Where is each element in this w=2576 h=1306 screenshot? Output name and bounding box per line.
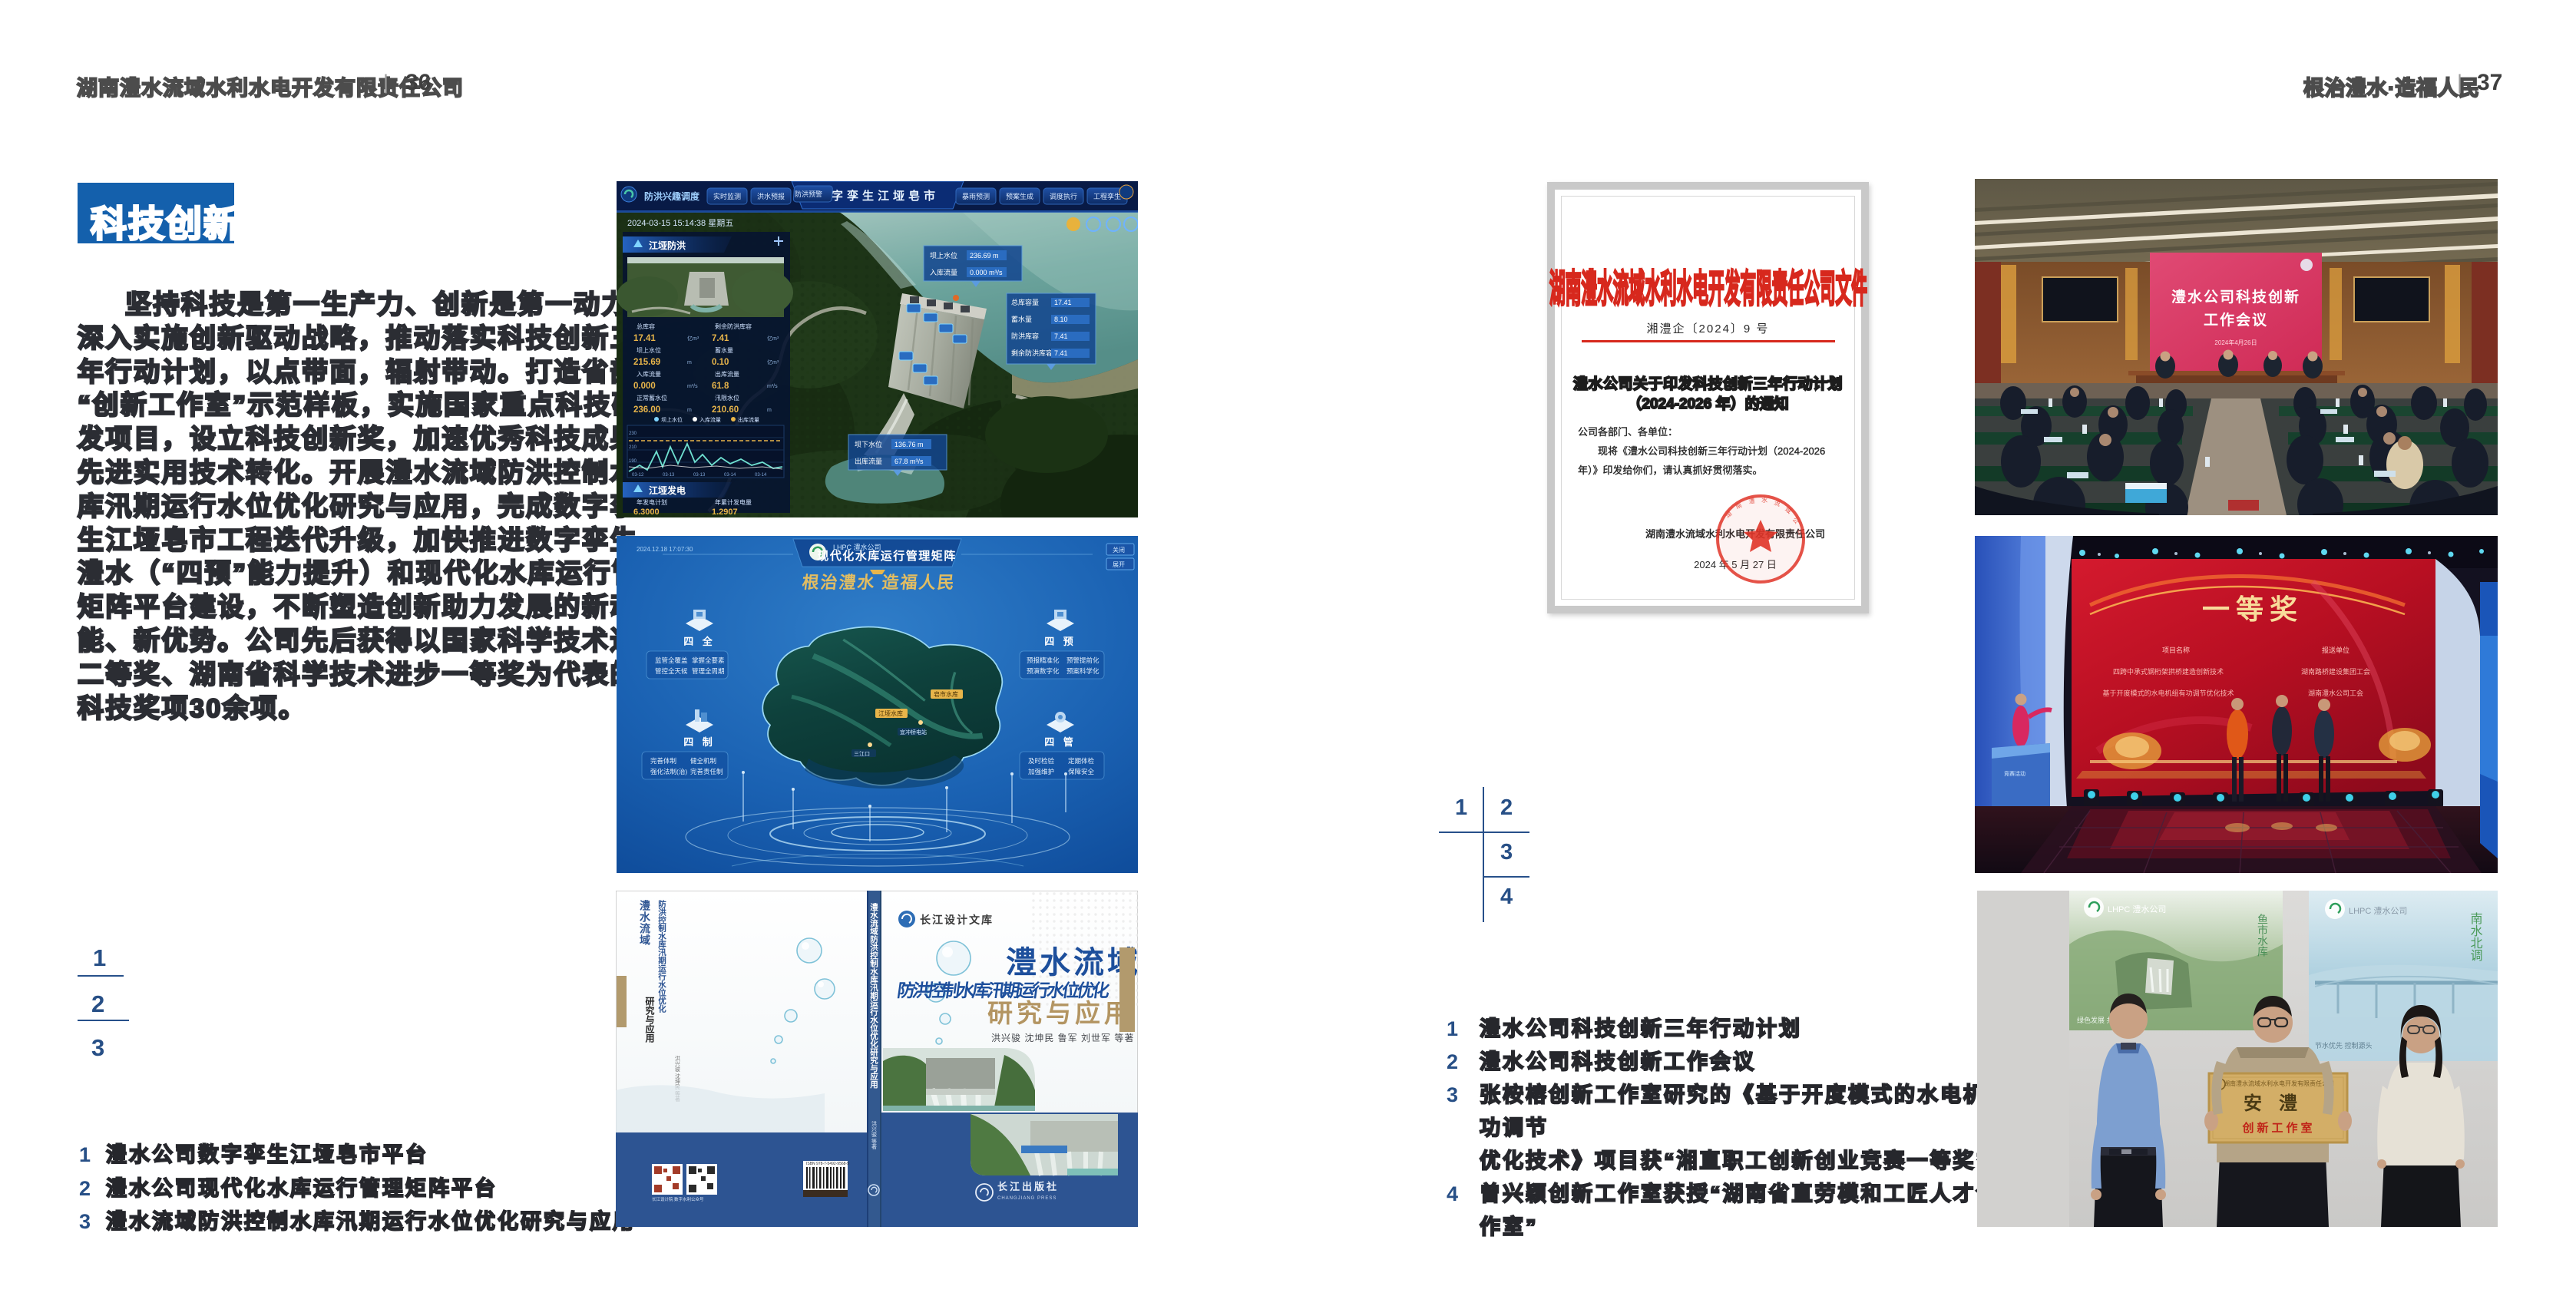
svg-text:215.69: 215.69 xyxy=(633,358,660,367)
svg-text:掌握全要素: 掌握全要素 xyxy=(692,656,725,664)
svg-text:7.41: 7.41 xyxy=(712,334,729,343)
svg-text:0.000 m³/s: 0.000 m³/s xyxy=(970,269,1003,276)
svg-text:67.8 m³/s: 67.8 m³/s xyxy=(894,458,924,465)
svg-text:136.76 m: 136.76 m xyxy=(894,441,924,448)
svg-text:7.41: 7.41 xyxy=(1054,349,1068,357)
svg-text:管控全天候: 管控全天候 xyxy=(655,667,688,675)
svg-text:节水优先 控制源头: 节水优先 控制源头 xyxy=(2315,1041,2373,1050)
svg-text:监管全覆盖: 监管全覆盖 xyxy=(655,656,688,664)
svg-text:澧水流域防洪控制水库汛期运行水位优化研究与应用: 澧水流域防洪控制水库汛期运行水位优化研究与应用 xyxy=(869,902,878,1089)
svg-text:年发电计划: 年发电计划 xyxy=(637,498,667,506)
svg-text:m³/s: m³/s xyxy=(687,384,698,389)
svg-text:蓄水量: 蓄水量 xyxy=(715,346,733,354)
svg-text:m: m xyxy=(687,408,692,413)
svg-text:入库流量: 入库流量 xyxy=(930,268,957,276)
svg-text:南水北调: 南水北调 xyxy=(2469,912,2483,962)
svg-text:03-13: 03-13 xyxy=(663,473,675,478)
svg-text:澧水流域: 澧水流域 xyxy=(1006,946,1138,980)
svg-text:关闭: 关闭 xyxy=(1113,546,1125,554)
svg-text:基于开度模式的水电机组有功调节优化技术: 基于开度模式的水电机组有功调节优化技术 xyxy=(2102,689,2234,697)
svg-text:根治澧水 造福人民: 根治澧水 造福人民 xyxy=(801,573,957,592)
svg-text:入库流量: 入库流量 xyxy=(699,416,721,423)
svg-text:四 管: 四 管 xyxy=(1044,736,1076,748)
svg-text:及时检验: 及时检验 xyxy=(1028,757,1055,765)
svg-text:长江设计文库: 长江设计文库 xyxy=(920,914,994,926)
svg-text:鱼市水库: 鱼市水库 xyxy=(2257,913,2269,957)
svg-text:236.00: 236.00 xyxy=(633,405,660,415)
svg-text:皂市水库: 皂市水库 xyxy=(934,690,958,698)
svg-text:定期体检: 定期体检 xyxy=(1068,757,1095,765)
svg-text:报送单位: 报送单位 xyxy=(2322,646,2349,654)
svg-text:m: m xyxy=(767,408,772,413)
svg-text:61.8: 61.8 xyxy=(712,382,729,391)
svg-text:水: 水 xyxy=(1761,496,1768,504)
svg-text:数字孪生江垭皂市: 数字孪生江垭皂市 xyxy=(816,189,939,203)
svg-text:03-14: 03-14 xyxy=(724,473,736,478)
svg-text:工程孪生: 工程孪生 xyxy=(1093,192,1121,200)
svg-text:8.10: 8.10 xyxy=(1054,316,1068,323)
svg-text:洪兴骏 等著: 洪兴骏 等著 xyxy=(871,1120,878,1150)
svg-text:加强维护: 加强维护 xyxy=(1028,768,1054,775)
svg-text:完善体制: 完善体制 xyxy=(650,757,676,765)
svg-text:汛限水位: 汛限水位 xyxy=(715,394,739,402)
svg-text:17.41: 17.41 xyxy=(1054,299,1072,306)
svg-text:2024-03-15 15:14:38 星期五: 2024-03-15 15:14:38 星期五 xyxy=(627,218,733,228)
svg-text:防洪兴趣调度: 防洪兴趣调度 xyxy=(644,190,700,202)
svg-text:湖南路桥建设集团工会: 湖南路桥建设集团工会 xyxy=(2301,667,2370,676)
svg-text:210.60: 210.60 xyxy=(712,405,739,415)
svg-text:研究与应用: 研究与应用 xyxy=(987,999,1133,1027)
svg-text:预案生成: 预案生成 xyxy=(1006,192,1033,200)
svg-text:宜冲桥电站: 宜冲桥电站 xyxy=(900,729,927,736)
svg-text:一等奖: 一等奖 xyxy=(2202,593,2303,625)
svg-text:四 全: 四 全 xyxy=(683,636,716,647)
svg-text:03-14: 03-14 xyxy=(755,473,767,478)
svg-text:四跨中承式钢桁架拱桥建造创新技术: 四跨中承式钢桁架拱桥建造创新技术 xyxy=(2113,667,2224,676)
svg-text:03-13: 03-13 xyxy=(693,473,706,478)
svg-text:洪兴骏 沈坤民 鲁军 刘世军 等著: 洪兴骏 沈坤民 鲁军 刘世军 等著 xyxy=(991,1032,1134,1043)
svg-text:工作会议: 工作会议 xyxy=(2204,311,2268,329)
svg-text:长江设计院 数字水利公众号: 长江设计院 数字水利公众号 xyxy=(652,1196,704,1202)
svg-text:实时监测: 实时监测 xyxy=(713,192,741,200)
svg-text:210: 210 xyxy=(629,445,637,450)
svg-text:LHPC 澧水公司: LHPC 澧水公司 xyxy=(2349,905,2407,916)
svg-text:7.41: 7.41 xyxy=(1054,332,1068,340)
svg-text:17.41: 17.41 xyxy=(633,334,656,343)
svg-text:236.69 m: 236.69 m xyxy=(970,252,999,260)
svg-text:江垭水库: 江垭水库 xyxy=(878,709,903,717)
svg-text:防洪控制水库汛期运行水位优化: 防洪控制水库汛期运行水位优化 xyxy=(896,980,1111,1000)
svg-text:暴雨预测: 暴雨预测 xyxy=(962,193,990,200)
svg-text:安澧: 安澧 xyxy=(2244,1093,2314,1114)
svg-text:长江出版社: 长江出版社 xyxy=(997,1181,1059,1192)
svg-text:竞赛活动: 竞赛活动 xyxy=(2004,770,2025,777)
svg-text:研究与应用: 研究与应用 xyxy=(644,997,655,1043)
svg-text:出库流量: 出库流量 xyxy=(855,457,882,465)
svg-text:2024年4月26日: 2024年4月26日 xyxy=(2214,339,2257,346)
svg-text:现代化水库运行管理矩阵: 现代化水库运行管理矩阵 xyxy=(817,549,957,563)
svg-text:调度执行: 调度执行 xyxy=(1050,192,1077,200)
svg-text:湖南澧水流域水利水电开发有限责任公司: 湖南澧水流域水利水电开发有限责任公司 xyxy=(2224,1080,2334,1087)
svg-text:江垭发电: 江垭发电 xyxy=(649,484,686,496)
svg-text:亿m³: 亿m³ xyxy=(767,335,779,342)
svg-text:坝上水位: 坝上水位 xyxy=(637,346,661,354)
svg-text:亿m³: 亿m³ xyxy=(687,335,699,342)
svg-text:澧水流域: 澧水流域 xyxy=(639,899,651,946)
svg-text:出库流量: 出库流量 xyxy=(715,370,739,378)
svg-text:0.000: 0.000 xyxy=(633,382,656,391)
svg-text:保障安全: 保障安全 xyxy=(1068,768,1095,775)
svg-text:三江口: 三江口 xyxy=(854,751,870,757)
svg-text:总库容: 总库容 xyxy=(637,322,655,330)
svg-text:m: m xyxy=(687,360,692,365)
svg-text:防洪预警: 防洪预警 xyxy=(795,190,822,198)
svg-text:蓄水量: 蓄水量 xyxy=(1011,315,1032,323)
svg-text:2024.12.18 17:07:30: 2024.12.18 17:07:30 xyxy=(637,546,693,553)
svg-text:正常蓄水位: 正常蓄水位 xyxy=(637,394,667,402)
svg-text:创新工作室: 创新工作室 xyxy=(2241,1121,2315,1135)
svg-text:LHPC 澧水公司: LHPC 澧水公司 xyxy=(2108,904,2166,914)
svg-text:1.2907: 1.2907 xyxy=(712,508,738,517)
svg-text:03-12: 03-12 xyxy=(632,473,644,478)
svg-text:剩余防洪库容: 剩余防洪库容 xyxy=(715,322,752,330)
svg-text:防洪控制水库汛期运行水位优化: 防洪控制水库汛期运行水位优化 xyxy=(657,899,666,1013)
svg-text:6.3000: 6.3000 xyxy=(633,508,660,517)
svg-text:项目名称: 项目名称 xyxy=(2162,646,2190,654)
svg-text:坝下水位: 坝下水位 xyxy=(855,440,882,448)
svg-text:剩余防洪库容: 剩余防洪库容 xyxy=(1011,349,1053,357)
svg-text:预报精准化: 预报精准化 xyxy=(1027,656,1060,664)
svg-text:强化法制(治): 强化法制(治) xyxy=(650,768,687,775)
svg-text:190: 190 xyxy=(629,459,637,464)
svg-text:湖南澧水公司工会: 湖南澧水公司工会 xyxy=(2308,689,2363,697)
svg-text:健全机制: 健全机制 xyxy=(690,757,716,765)
svg-text:230: 230 xyxy=(629,431,637,436)
svg-text:ISBN 978-7-5492-9568-9: ISBN 978-7-5492-9568-9 xyxy=(806,1162,849,1166)
svg-text:展开: 展开 xyxy=(1113,561,1125,568)
svg-text:预警提前化: 预警提前化 xyxy=(1066,656,1100,664)
svg-text:完善责任制: 完善责任制 xyxy=(690,768,723,775)
svg-text:澧: 澧 xyxy=(1748,497,1756,505)
svg-text:预案科学化: 预案科学化 xyxy=(1066,667,1100,675)
svg-text:入库流量: 入库流量 xyxy=(637,370,661,378)
svg-text:坝上水位: 坝上水位 xyxy=(930,251,957,260)
svg-text:江垭防洪: 江垭防洪 xyxy=(649,240,686,251)
svg-text:洪水预报: 洪水预报 xyxy=(757,192,785,200)
svg-text:四 预: 四 预 xyxy=(1044,636,1076,647)
svg-text:坝上水位: 坝上水位 xyxy=(661,416,683,423)
svg-text:四 制: 四 制 xyxy=(683,736,716,748)
svg-text:出库流量: 出库流量 xyxy=(738,416,759,423)
svg-text:防洪库容: 防洪库容 xyxy=(1011,332,1039,340)
svg-text:总库容量: 总库容量 xyxy=(1011,298,1039,306)
svg-text:预演数字化: 预演数字化 xyxy=(1027,667,1060,675)
svg-text:CHANGJIANG PRESS: CHANGJIANG PRESS xyxy=(997,1196,1057,1201)
svg-text:年累计发电量: 年累计发电量 xyxy=(715,498,752,506)
svg-text:m³/s: m³/s xyxy=(767,384,778,389)
svg-text:亿m³: 亿m³ xyxy=(767,359,779,365)
svg-text:管理全周期: 管理全周期 xyxy=(692,667,725,675)
svg-text:澧水公司科技创新: 澧水公司科技创新 xyxy=(2171,288,2300,306)
svg-text:0.10: 0.10 xyxy=(712,358,729,367)
